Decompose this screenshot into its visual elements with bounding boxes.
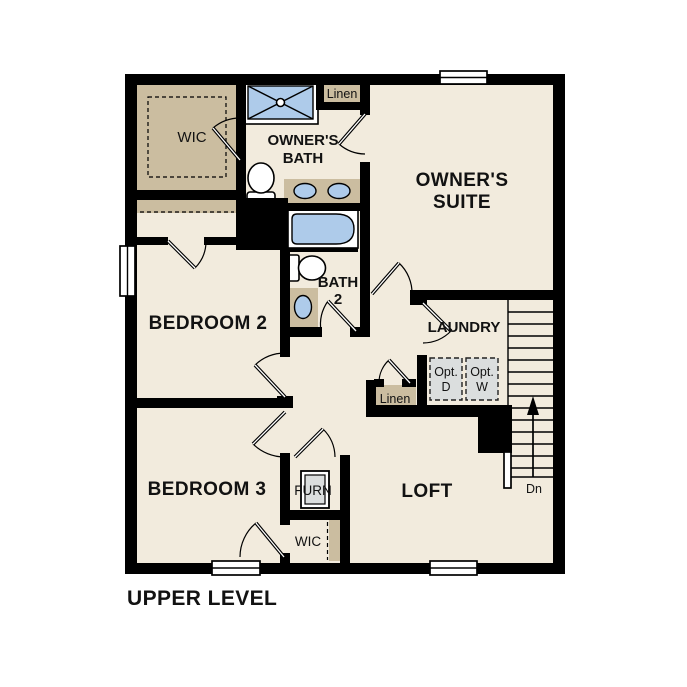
label-stairs-down: Dn: [526, 482, 542, 496]
wall-segment: [125, 237, 168, 245]
label-bath-2-line1: BATH: [318, 274, 359, 291]
wall-segment: [280, 327, 322, 337]
label-bedroom-2: BEDROOM 2: [149, 313, 268, 334]
wall-segment: [280, 510, 350, 520]
wall-segment: [204, 237, 237, 245]
label-linen-upper: Linen: [327, 87, 358, 101]
bedroom2-closet-shelf: [137, 200, 237, 213]
wic-lower-shelf: [329, 520, 340, 561]
wall-segment: [125, 190, 246, 200]
label-wic-upper: WIC: [177, 129, 206, 146]
wall-segment: [125, 74, 137, 574]
label-owners-bath-line2: BATH: [283, 150, 324, 167]
wall-segment: [553, 74, 565, 574]
label-owners-bath-line1: OWNER'S: [267, 132, 338, 149]
wall-segment: [360, 85, 370, 115]
label-opt-washer-line1: Opt.: [470, 365, 494, 379]
wall-segment: [277, 396, 293, 408]
label-bath-2-line2: 2: [334, 291, 342, 308]
floor-plan-page: WIC OWNER'S BATH Linen OWNER'S SUITE BED…: [0, 0, 687, 687]
wall-segment: [236, 85, 246, 198]
wall-segment: [366, 405, 512, 417]
wall-segment: [340, 520, 350, 563]
wall-segment: [410, 290, 555, 300]
wall-segment: [125, 563, 565, 574]
wall-segment: [417, 355, 427, 407]
label-furnace: FURN: [294, 483, 332, 498]
wall-segment: [288, 248, 358, 252]
wall-segment: [478, 417, 512, 453]
label-linen-lower: Linen: [380, 392, 411, 406]
label-bedroom-3: BEDROOM 3: [148, 479, 267, 500]
stair-railing: [504, 452, 511, 488]
label-owners-suite-line2: SUITE: [433, 192, 491, 213]
wall-segment: [280, 248, 290, 357]
wall-segment: [360, 162, 370, 337]
shower-icon: [243, 81, 318, 124]
label-opt-washer-line2: W: [476, 380, 488, 394]
label-laundry: LAUNDRY: [428, 319, 501, 336]
bathtub-icon: [288, 210, 358, 248]
plumbing-chase: [236, 198, 288, 250]
label-owners-suite-line1: OWNER'S: [416, 170, 509, 191]
label-loft: LOFT: [401, 481, 452, 502]
wall-segment: [125, 74, 565, 85]
label-wic-lower: WIC: [295, 534, 321, 549]
floor-plan-drawing: WIC OWNER'S BATH Linen OWNER'S SUITE BED…: [0, 0, 687, 687]
wall-segment: [282, 203, 370, 211]
label-opt-dryer-line1: Opt.: [434, 365, 458, 379]
label-opt-dryer-line2: D: [441, 380, 450, 394]
page-title: UPPER LEVEL: [127, 587, 277, 610]
bath2-sink-icon: [295, 296, 312, 319]
wall-segment: [125, 398, 283, 408]
